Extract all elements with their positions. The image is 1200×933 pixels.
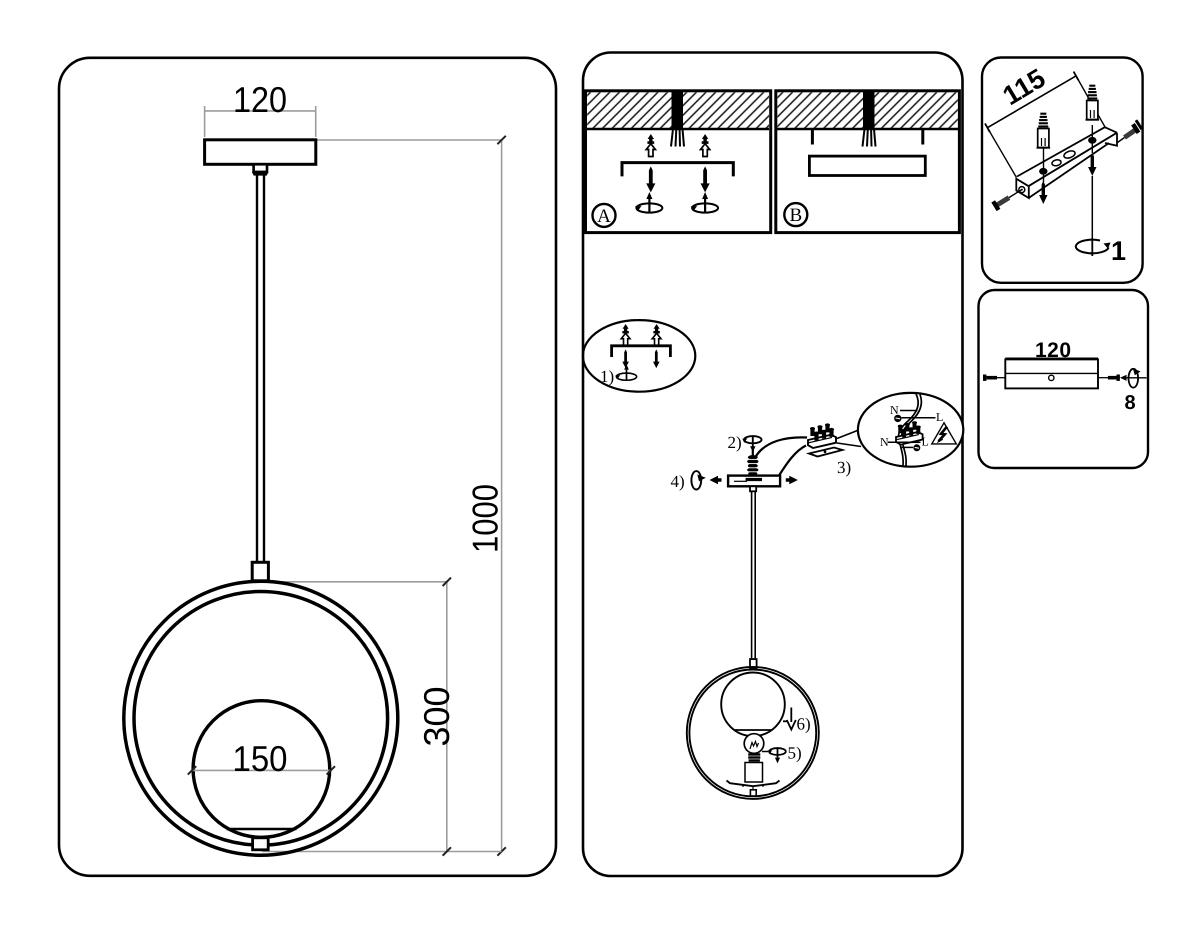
svg-text:3): 3) [837,458,851,477]
svg-text:5): 5) [788,744,802,763]
svg-text:B: B [789,205,802,226]
svg-text:A: A [597,206,611,227]
svg-text:2): 2) [728,433,742,452]
svg-text:1: 1 [1111,236,1126,266]
svg-text:N: N [880,435,889,449]
svg-text:120: 120 [233,79,287,120]
svg-text:1000: 1000 [465,484,506,553]
svg-text:6): 6) [797,715,811,734]
svg-text:1): 1) [600,367,614,386]
svg-text:300: 300 [416,687,457,747]
svg-text:8: 8 [1125,392,1136,414]
svg-text:L: L [922,435,929,449]
svg-text:L: L [936,410,943,424]
svg-text:150: 150 [233,738,288,779]
svg-text:4): 4) [671,472,685,491]
